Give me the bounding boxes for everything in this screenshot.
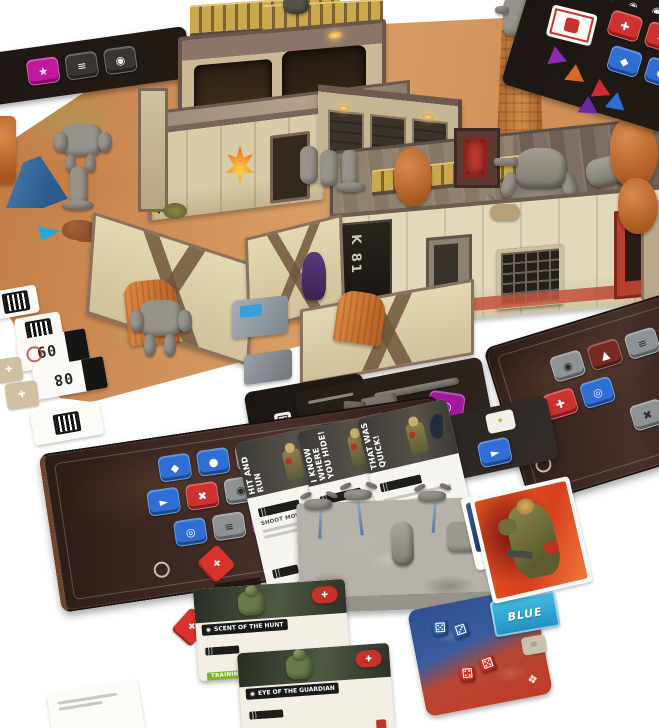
orange-pillar-terrain (0, 116, 16, 184)
chip-shield-icon: ◆ (605, 44, 643, 78)
mech-miniature (134, 298, 188, 360)
console-screen (240, 304, 262, 318)
red-mini-icon (376, 719, 387, 728)
mech-miniature (58, 124, 108, 172)
barcode-icon (52, 411, 81, 435)
sandbags (490, 204, 520, 220)
red-die: ⚄ (478, 655, 497, 674)
partial-card (46, 679, 145, 728)
training-badge-icon: ✚ (311, 585, 338, 604)
dashboard-chips-row: ✖ (628, 398, 659, 432)
chip-target-icon: ◉ (103, 45, 138, 75)
blue-die: ⚂ (452, 621, 471, 640)
tracker-chips-row: ◆● (605, 44, 659, 90)
crow-art (430, 414, 443, 438)
equipment-card (30, 400, 105, 446)
ability-title-text: EYE OF THE GUARDIAN (258, 685, 335, 697)
chip-shield-icon: ◆ (157, 452, 192, 482)
dashboard-chips-row: ◉▲≡ (549, 326, 659, 383)
soldier-miniature (300, 146, 318, 184)
bush (163, 203, 187, 219)
tabletop-scene: ★≡◉ (0, 0, 659, 728)
ability-card: ✚ ◉ EYE OF THE GUARDIAN TRAINING 1 (237, 643, 395, 728)
blue-die: ⚄ (432, 621, 448, 637)
cloaked-figure-miniature (302, 252, 326, 300)
chip-target-icon: ◉ (549, 349, 587, 383)
drone-miniature (418, 490, 446, 502)
tan-puzzle-token: ✚ (4, 380, 39, 410)
chip-arrow-icon: ► (146, 486, 181, 516)
ability-title-text: SCENT OF THE HUNT (214, 621, 284, 633)
burst-icon: ❖ (526, 672, 539, 688)
drone-stem (432, 503, 437, 533)
training-badge-icon: ✚ (355, 649, 382, 668)
roof-stair-door (454, 128, 500, 188)
chip-pattern-icon: ▲ (586, 338, 624, 372)
drone-stem (357, 501, 364, 535)
mini-base (62, 200, 94, 210)
event-card-icon (563, 17, 580, 34)
console-crate (232, 295, 288, 339)
chip-bars-icon: ≡ (64, 51, 99, 81)
ceiling-lamp (328, 31, 342, 40)
drone-miniature (344, 489, 372, 501)
drone-miniature (304, 498, 332, 510)
chip-scope-icon: ◎ (173, 517, 208, 547)
chip-dot-icon: ✖ (643, 20, 659, 54)
statue-miniature (283, 0, 309, 14)
chip-frame-icon: ◎ (579, 375, 617, 409)
blue-card-label: BLUE (507, 605, 544, 624)
orange-rock (618, 178, 658, 234)
connector-ring (153, 561, 171, 579)
ammo-number: 08 (51, 369, 74, 390)
chip-star-icon: ★ (25, 56, 60, 86)
chip-gear-icon: ● (643, 56, 659, 90)
soldier-miniature (342, 150, 358, 186)
mech-body (516, 148, 566, 188)
mini-event-card (546, 4, 598, 46)
level-circle-icon: ◉ (206, 626, 212, 633)
chip-x-icon: ✖ (185, 481, 220, 511)
dashboard-chips-row: ✚◎ (541, 375, 616, 421)
orange-rock (394, 148, 432, 206)
pistol-chip: ► (477, 436, 514, 468)
mission-card-title: I KNOW WHERE YOU HIDE! (300, 429, 337, 484)
k81-sign-text: K 81 (348, 234, 363, 276)
metal-crate (244, 349, 292, 386)
annex-wall (138, 88, 168, 212)
character-card-art (474, 481, 588, 600)
orange-corrugated-sheet (333, 289, 388, 347)
soldier-miniature (320, 150, 338, 186)
chip-wrench-icon: ✖ (628, 398, 659, 432)
level-circle-icon: ◉ (250, 690, 256, 697)
lime-token: ✦ (485, 409, 517, 434)
figure-gun-art (507, 550, 534, 559)
chip-bars-icon: ≡ (623, 326, 659, 360)
chip-ammo-icon: ✚ (606, 9, 644, 43)
statue-arm (495, 6, 509, 14)
tan-puzzle-token: ✚ (0, 356, 24, 383)
move-tag-chip (272, 564, 299, 579)
drone-stem (318, 511, 322, 539)
soldier-art (405, 421, 429, 454)
chip-bars-icon: ≡ (211, 511, 246, 541)
ability-card-body: TRAINING 1 (249, 695, 387, 728)
red-die: ⚃ (459, 666, 475, 682)
mini-base (336, 182, 366, 192)
mech-barrel (494, 158, 518, 166)
hero-miniature (391, 521, 415, 566)
left-board-chips: ★≡◉ (25, 45, 138, 86)
chip-gear-icon: ● (196, 447, 231, 477)
barcode-icon (1, 290, 30, 314)
red-door (463, 137, 487, 177)
